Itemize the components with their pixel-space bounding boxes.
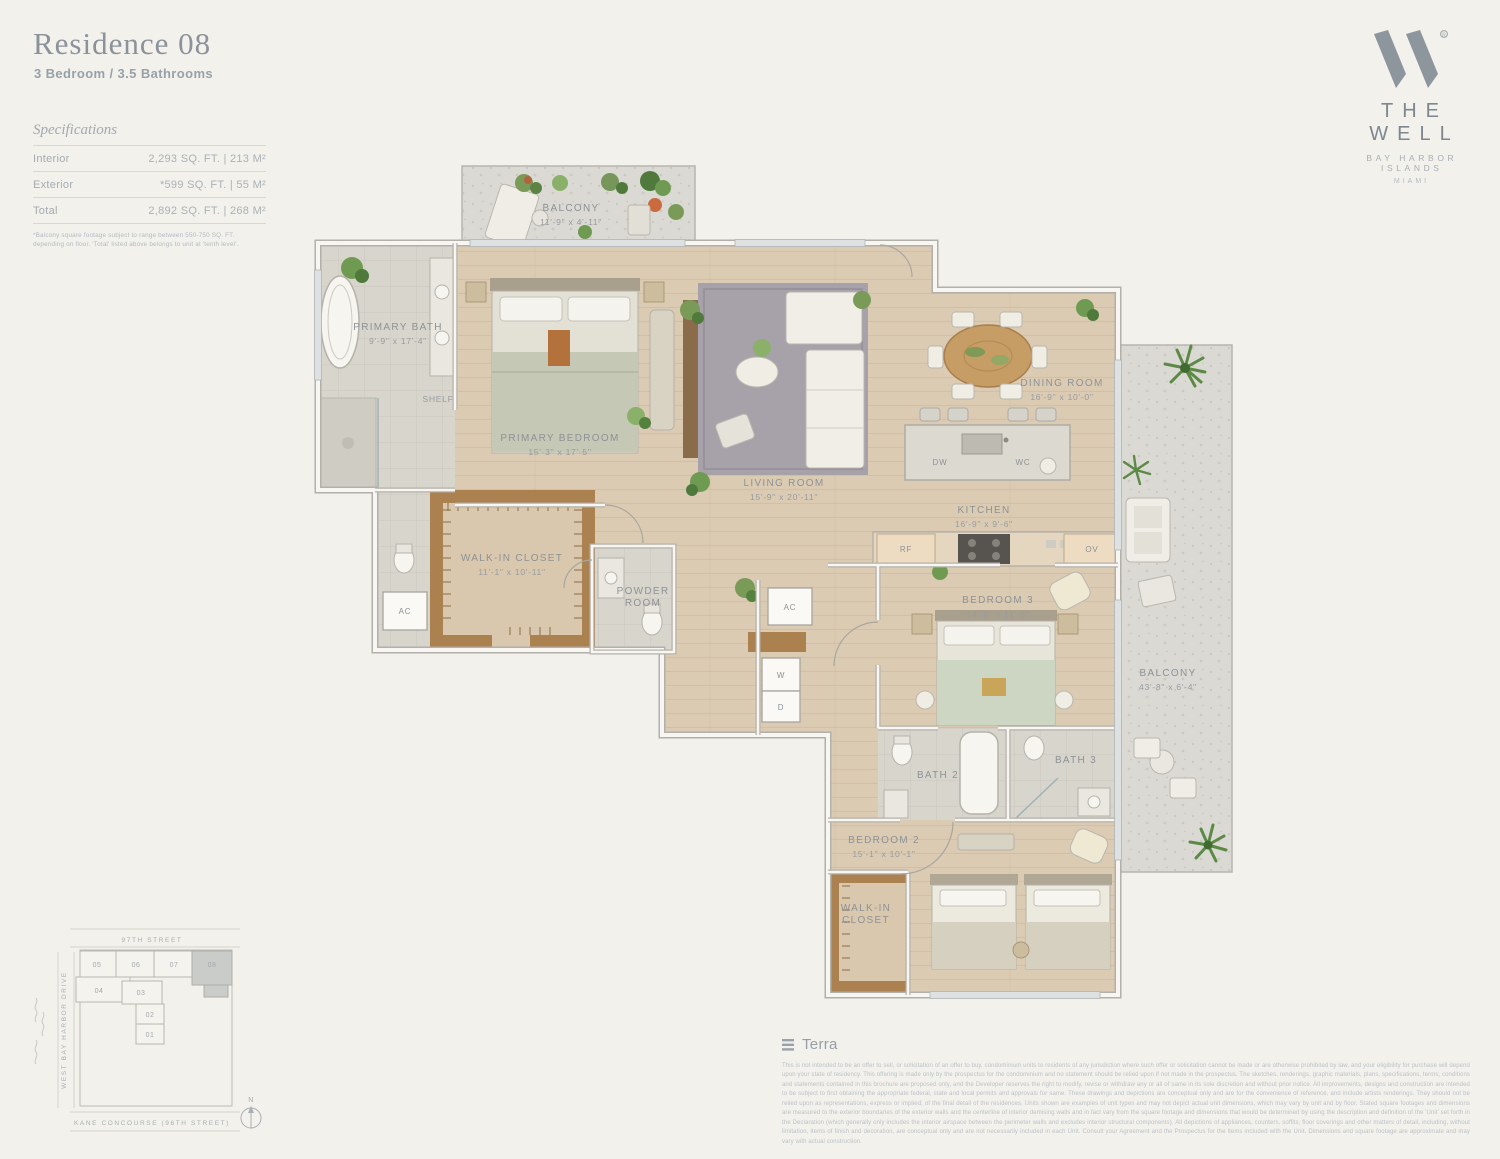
water-icon: [35, 998, 44, 1064]
street-left-label: WEST BAY HARBOR DRIVE: [61, 971, 68, 1089]
label-refrigerator: RF: [900, 545, 912, 554]
label-dryer: D: [778, 703, 785, 712]
label-living-room-dims: 15'-9" x 20'-11": [750, 492, 818, 502]
site-unit-08: 08: [208, 962, 217, 969]
label-shelf: SHELF: [422, 394, 453, 404]
label-primary-bath: PRIMARY BATH: [353, 322, 443, 333]
site-unit-01: 01: [146, 1032, 155, 1039]
street-bottom-label: KANE CONCOURSE (96TH STREET): [74, 1120, 230, 1127]
label-bedroom-3-dims: 14'-8" x 11'-6": [967, 609, 1030, 619]
label-living-room: LIVING ROOM: [744, 478, 825, 489]
label-bedroom-2-dims: 15'-1" x 10'-1": [852, 849, 915, 859]
floorplan-sheet: Residence 08 3 Bedroom / 3.5 Bathrooms S…: [0, 0, 1500, 1159]
balcony-right: [1120, 345, 1232, 872]
label-walk-in-closet-1: WALK-IN CLOSET: [461, 553, 563, 564]
label-dishwasher: DW: [933, 458, 948, 467]
label-bath-2: BATH 2: [917, 770, 959, 781]
site-unit-03: 03: [137, 990, 146, 997]
label-dining-room: DINING ROOM: [1020, 378, 1103, 389]
label-balcony-right-dims: 43'-8" x 6'-4": [1139, 682, 1197, 692]
label-balcony-right: BALCONY: [1140, 668, 1197, 679]
label-primary-bath-dims: 9'-9" x 17'-4": [369, 336, 427, 346]
label-washer: W: [777, 671, 785, 680]
site-unit-06: 06: [132, 962, 141, 969]
label-powder-room-1: POWDER: [617, 586, 670, 597]
floor-plan: BALCONY 11'-9" x 4'-11" PRIMARY BATH 9'-…: [0, 0, 1500, 1159]
label-walk-in-closet-1-dims: 11'-1" x 10'-11": [478, 567, 546, 577]
label-balcony-top: BALCONY: [543, 203, 600, 214]
label-bath-3: BATH 3: [1055, 755, 1097, 766]
label-primary-bedroom-dims: 15'-3" x 17'-5": [528, 447, 591, 457]
street-top-label: 97TH STREET: [122, 937, 183, 944]
legal-disclaimer: This is not intended to be an offer to s…: [782, 1062, 1470, 1147]
label-ac-1: AC: [399, 607, 412, 616]
site-unit-02: 02: [146, 1012, 155, 1019]
label-oven: OV: [1085, 545, 1098, 554]
terra-icon: [782, 1038, 796, 1052]
bath-vanity: [430, 258, 454, 376]
north-compass-icon: N: [241, 1097, 261, 1128]
site-unit-04: 04: [95, 988, 104, 995]
label-kitchen-dims: 16'-9" x 9'-6": [955, 519, 1013, 529]
label-balcony-top-dims: 11'-9" x 4'-11": [540, 217, 602, 227]
terra-logo: Terra: [782, 1036, 838, 1053]
label-walk-in-closet-2b: CLOSET: [842, 915, 890, 926]
walk-in-closet-2: [828, 872, 908, 992]
label-walk-in-closet-2a: WALK-IN: [841, 903, 891, 914]
label-ac-2: AC: [784, 603, 797, 612]
label-primary-bedroom: PRIMARY BEDROOM: [500, 433, 619, 444]
label-bedroom-2: BEDROOM 2: [848, 835, 920, 846]
label-dining-room-dims: 16'-9" x 10'-0": [1030, 392, 1093, 402]
site-map: 97TH STREET WEST BAY HARBOR DRIVE KANE C…: [35, 929, 261, 1131]
label-powder-room-2: ROOM: [625, 598, 661, 609]
terra-name: Terra: [802, 1036, 838, 1053]
label-kitchen: KITCHEN: [958, 505, 1011, 516]
site-unit-07: 07: [170, 962, 179, 969]
site-unit-05: 05: [93, 962, 102, 969]
compass-n-label: N: [248, 1097, 254, 1104]
washer-dryer-stack: [762, 658, 800, 722]
label-wine-cooler: WC: [1016, 458, 1031, 467]
label-bedroom-3: BEDROOM 3: [962, 595, 1034, 606]
